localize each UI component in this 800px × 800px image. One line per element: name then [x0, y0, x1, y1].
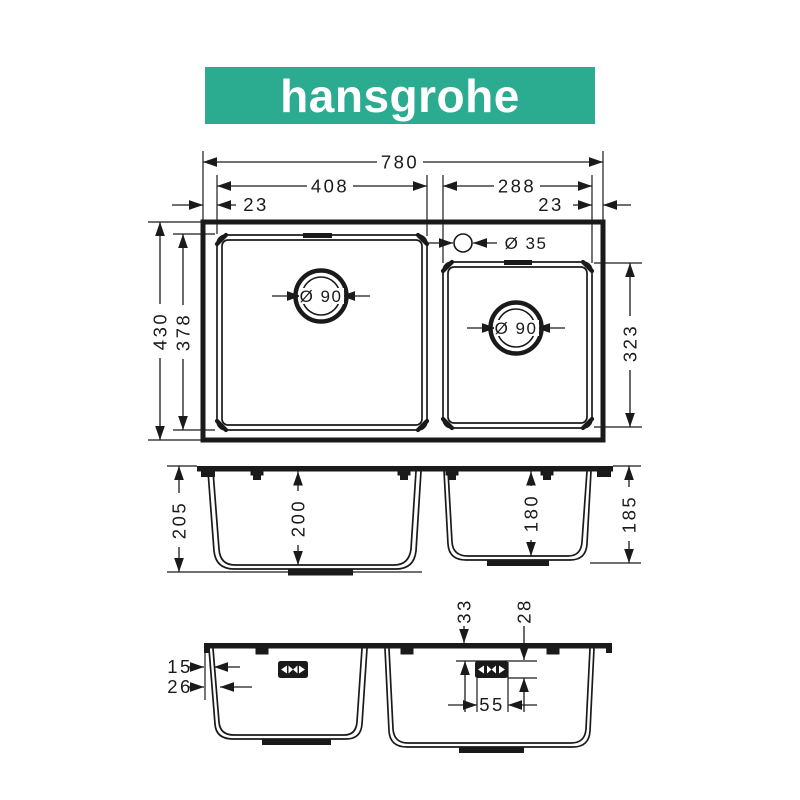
dim-clip-offset: 33 [454, 598, 475, 712]
dim-left-edge-gap: 23 [172, 194, 269, 215]
dim-rim-outer-offset: 15 [167, 656, 240, 677]
large-bowl-drain-boss [459, 747, 524, 753]
dim-overall-depth: 430 [150, 222, 171, 440]
counter-line [204, 643, 612, 649]
logo-wordmark: hansgrohe [280, 70, 520, 122]
side-view: 33 28 15 26 55 [167, 598, 612, 753]
dim-left-outer-height: 205 [169, 466, 190, 572]
dim-right-bowl-width: 288 [443, 176, 592, 197]
right-end-cap [606, 649, 612, 654]
right-bowl-height-value: 180 [521, 494, 542, 532]
counter-line [197, 466, 613, 472]
dim-right-bowl-height: 180 [521, 472, 542, 557]
left-outer-height-value: 205 [169, 501, 190, 539]
right-bowl-section [444, 471, 591, 566]
sink-spec-sheet: hansgrohe Ø 90 [0, 0, 800, 800]
bracket-width-value: 55 [479, 694, 505, 715]
left-mounting-bracket [278, 661, 308, 678]
bracket-offset-value: 28 [514, 598, 535, 624]
overall-depth-value: 430 [150, 312, 171, 350]
front-view: 205 200 180 185 [167, 466, 641, 576]
technical-drawing: hansgrohe Ø 90 [0, 0, 800, 800]
left-drain: Ø 90 [272, 271, 370, 322]
dim-right-outer-height: 185 [619, 466, 640, 563]
tap-hole: Ø 35 [428, 234, 547, 253]
right-bowl-width-value: 288 [498, 176, 536, 197]
left-bowl-depth-value: 378 [173, 313, 194, 351]
overflow-notch [303, 233, 332, 238]
dim-left-bowl-depth: 378 [173, 234, 194, 430]
mounting-clips [256, 649, 560, 655]
mounting-clips [251, 472, 554, 481]
left-bowl-section [208, 471, 421, 576]
left-bowl-width-value: 408 [311, 176, 349, 197]
tap-hole-dimension: Ø 35 [505, 234, 548, 253]
overflow-notch [504, 260, 532, 265]
overall-width-value: 780 [381, 152, 419, 173]
right-bowl-plan [443, 260, 592, 428]
left-drain-dimension: Ø 90 [300, 287, 343, 306]
left-edge-gap-value: 23 [243, 194, 269, 215]
brand-logo: hansgrohe [205, 67, 595, 124]
dim-bracket-offset: 28 [514, 598, 535, 712]
clip-offset-value: 33 [454, 598, 475, 624]
dim-right-edge-gap: 23 [538, 194, 631, 215]
rim-inner-offset-value: 26 [167, 676, 193, 697]
dim-rim-inner-offset: 26 [167, 676, 252, 697]
right-drain-boss [487, 560, 549, 566]
left-bowl-plan [217, 233, 427, 430]
dim-left-bowl-height: 200 [288, 472, 309, 566]
small-bowl-drain-boss [262, 739, 331, 745]
right-rim-section [597, 472, 611, 478]
right-outer-height-value: 185 [619, 495, 640, 533]
rim-outer-offset-value: 15 [167, 656, 193, 677]
dim-overall-width: 780 [203, 152, 603, 173]
right-bowl-depth-value: 323 [620, 324, 641, 362]
right-mounting-bracket [475, 661, 508, 678]
right-edge-gap-value: 23 [538, 194, 564, 215]
corner-radius-marks [217, 235, 427, 430]
corner-radius-marks [443, 262, 592, 428]
right-drain-dimension: Ø 90 [495, 319, 538, 338]
left-bowl-height-value: 200 [288, 499, 309, 537]
left-drain-boss [288, 569, 353, 576]
dim-right-bowl-depth: 323 [620, 263, 641, 427]
top-view: Ø 90 Ø 90 Ø 35 780 [148, 151, 642, 440]
right-drain: Ø 90 [467, 303, 565, 354]
